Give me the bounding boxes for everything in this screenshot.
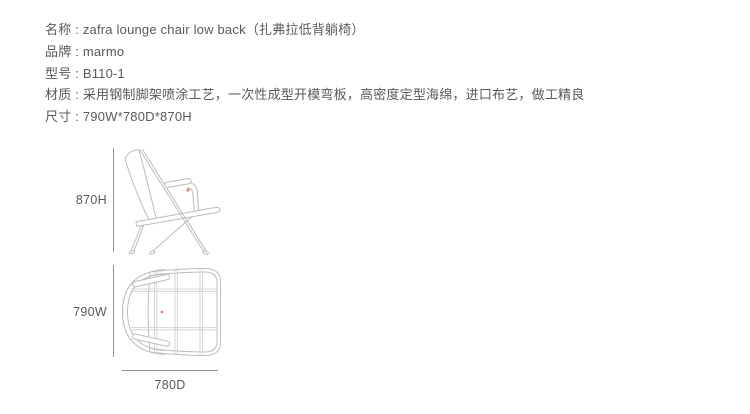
side-view-hotspot-marker (186, 188, 190, 192)
chair-side-view-drawing (116, 144, 248, 260)
spec-line-dimensions: 尺寸 : 790W*780D*870H (45, 106, 705, 128)
depth-dimension-label: 780D (138, 378, 202, 392)
product-spec-page: 名称 : zafra lounge chair low back（扎弗拉低背躺椅… (0, 0, 750, 414)
height-dimension-label: 870H (62, 193, 107, 207)
spec-line-brand: 品牌 : marmo (45, 41, 705, 63)
spec-list: 名称 : zafra lounge chair low back（扎弗拉低背躺椅… (45, 19, 705, 128)
spec-line-material: 材质 : 采用钢制脚架喷涂工艺，一次性成型开模弯板，高密度定型海绵，进口布艺，做… (45, 84, 705, 106)
spec-line-model: 型号 : B110-1 (45, 63, 705, 85)
chair-top-view-drawing (118, 263, 230, 363)
spec-line-name: 名称 : zafra lounge chair low back（扎弗拉低背躺椅… (45, 19, 705, 41)
width-dimension-line (113, 265, 114, 357)
depth-dimension-line (122, 370, 218, 371)
height-dimension-line (113, 148, 114, 252)
width-dimension-label: 790W (62, 305, 107, 319)
